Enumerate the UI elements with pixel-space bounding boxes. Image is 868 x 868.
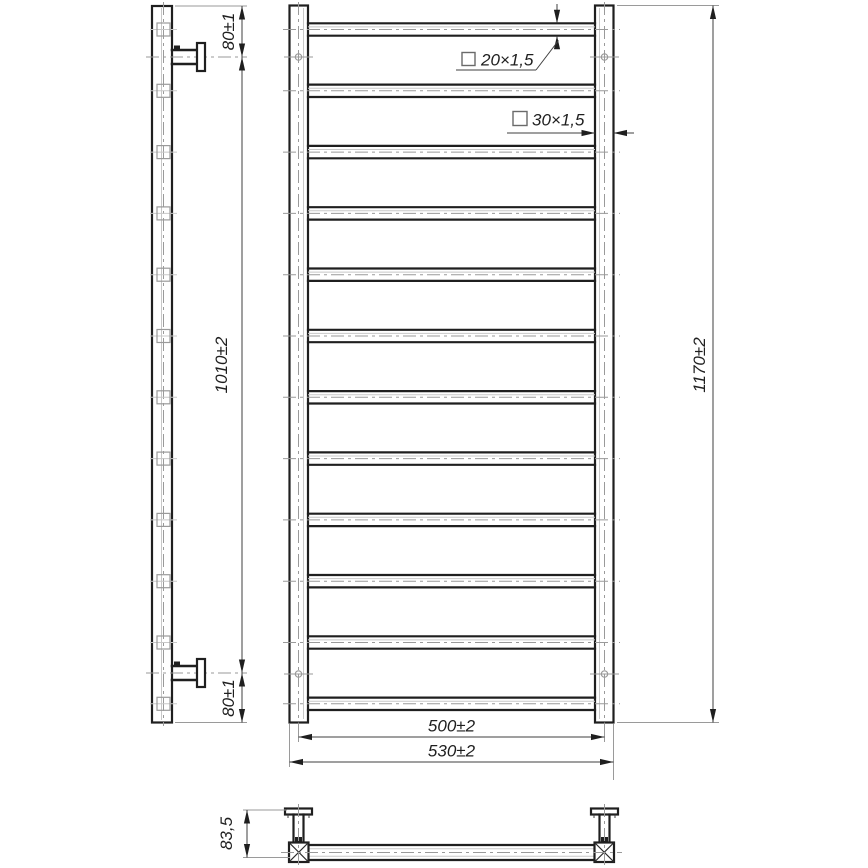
- square-tube-symbol-30: [513, 112, 527, 126]
- dim-label-top-bracket-offset: 80±1: [219, 13, 238, 51]
- dim-label-rung-width: 500±2: [428, 717, 476, 736]
- rung: [283, 330, 620, 342]
- technical-drawing-canvas: 80±1 1010±2 80±1 20×1,5: [0, 0, 868, 868]
- dim-label-bracket-spacing: 1010±2: [212, 336, 231, 393]
- height-dimension: 1170±2: [617, 6, 719, 723]
- drawing-page: 80±1 1010±2 80±1 20×1,5: [0, 0, 868, 868]
- dim-label-overall-height: 1170±2: [690, 337, 709, 393]
- square-tube-symbol-20: [462, 53, 475, 66]
- rung: [283, 575, 620, 587]
- rung: [283, 146, 620, 158]
- post-tube-callout: 30×1,5: [507, 111, 634, 134]
- rung: [283, 269, 620, 281]
- dim-label-rung-tube: 20×1,5: [480, 51, 534, 70]
- bottom-view: [281, 804, 622, 867]
- dim-label-bottom-bracket-offset: 80±1: [219, 679, 238, 717]
- left-dimension-chain: 80±1 1010±2 80±1: [175, 6, 247, 723]
- rung-tube-callout: 20×1,5: [456, 4, 559, 70]
- dim-label-overall-width: 530±2: [428, 742, 476, 761]
- width-dimensions: 500±2 530±2: [290, 717, 614, 781]
- side-view: [146, 2, 247, 726]
- rung: [283, 207, 620, 219]
- dim-label-post-tube: 30×1,5: [532, 111, 585, 130]
- mounting-holes: [284, 54, 619, 677]
- rung: [283, 636, 620, 648]
- dim-label-mount-depth: 83,5: [217, 816, 236, 850]
- rung: [283, 452, 620, 464]
- rung: [283, 698, 620, 710]
- rung: [283, 23, 620, 35]
- rung: [283, 514, 620, 526]
- rung: [283, 391, 620, 403]
- depth-dimension: 83,5: [217, 810, 290, 858]
- rung: [283, 85, 620, 97]
